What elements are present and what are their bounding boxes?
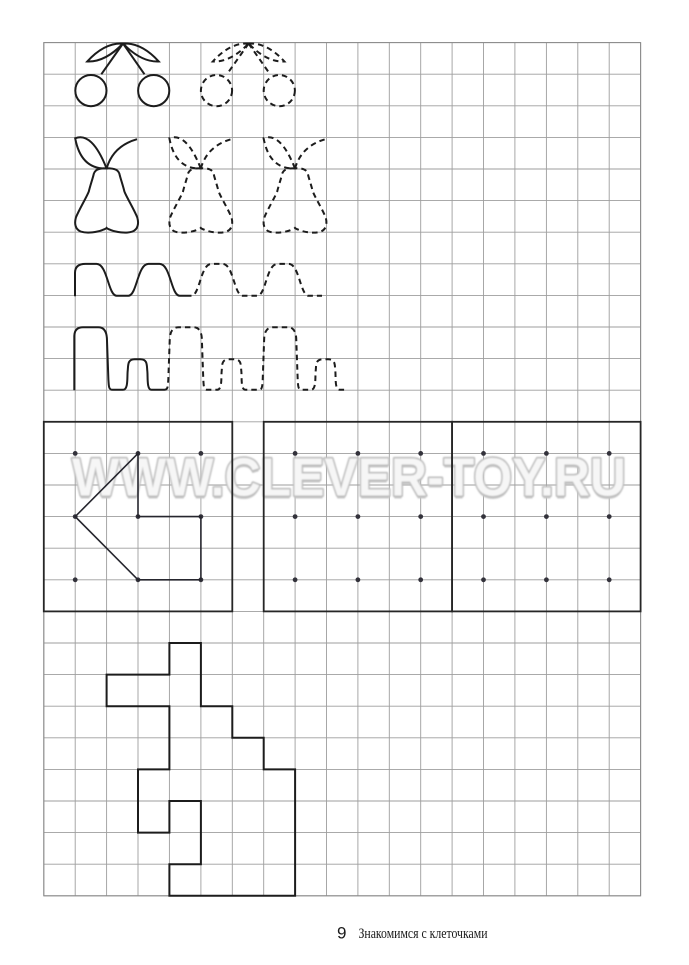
svg-text:WWW.CLEVER-TOY.RU: WWW.CLEVER-TOY.RU [72,448,626,508]
svg-text:9: 9 [337,924,346,943]
svg-text:Знакомимся с клеточками: Знакомимся с клеточками [359,926,488,942]
